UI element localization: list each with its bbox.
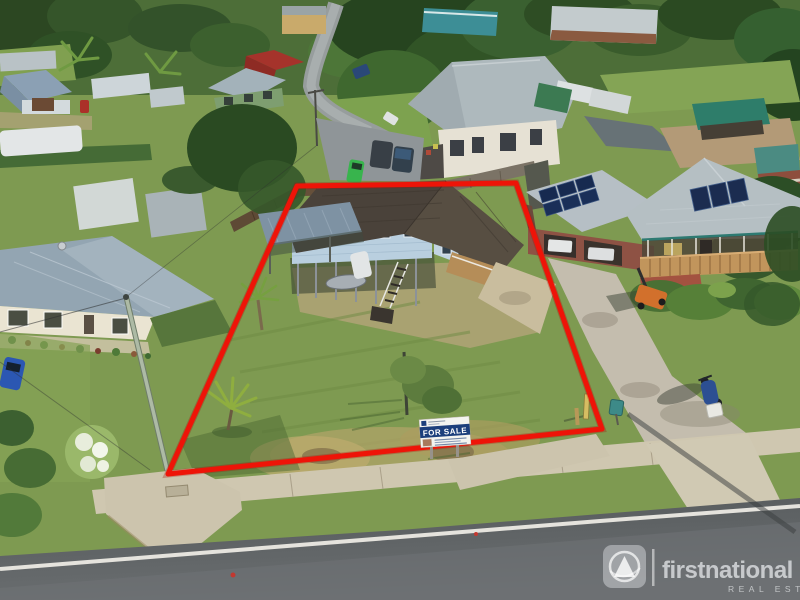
dark-suv	[369, 140, 393, 169]
watermark-tagline: REAL ESTATE	[728, 584, 800, 594]
far-left-shed	[0, 51, 56, 72]
aerial-property-photo: FOR SALE firstnational REAL ESTATE	[0, 0, 800, 600]
watermark-divider	[652, 549, 655, 586]
red-car	[80, 100, 89, 113]
parked-vehicle-2	[588, 247, 615, 261]
road-marker	[231, 573, 236, 578]
small-house-b	[149, 86, 185, 107]
roof-vent	[58, 242, 66, 250]
photo-canvas: FOR SALE firstnational REAL ESTATE	[0, 0, 800, 600]
white-flower-bush	[65, 425, 119, 479]
grey-shed	[145, 186, 207, 237]
white-shed	[73, 178, 139, 230]
agent-photo	[422, 439, 431, 447]
parked-vehicle-1	[548, 239, 573, 253]
sign-logo-icon	[421, 421, 426, 426]
watermark-brand: firstnational	[662, 557, 793, 584]
road-marker-2	[474, 532, 478, 536]
mailbox	[609, 399, 624, 416]
utility-pit-lid	[166, 485, 189, 497]
